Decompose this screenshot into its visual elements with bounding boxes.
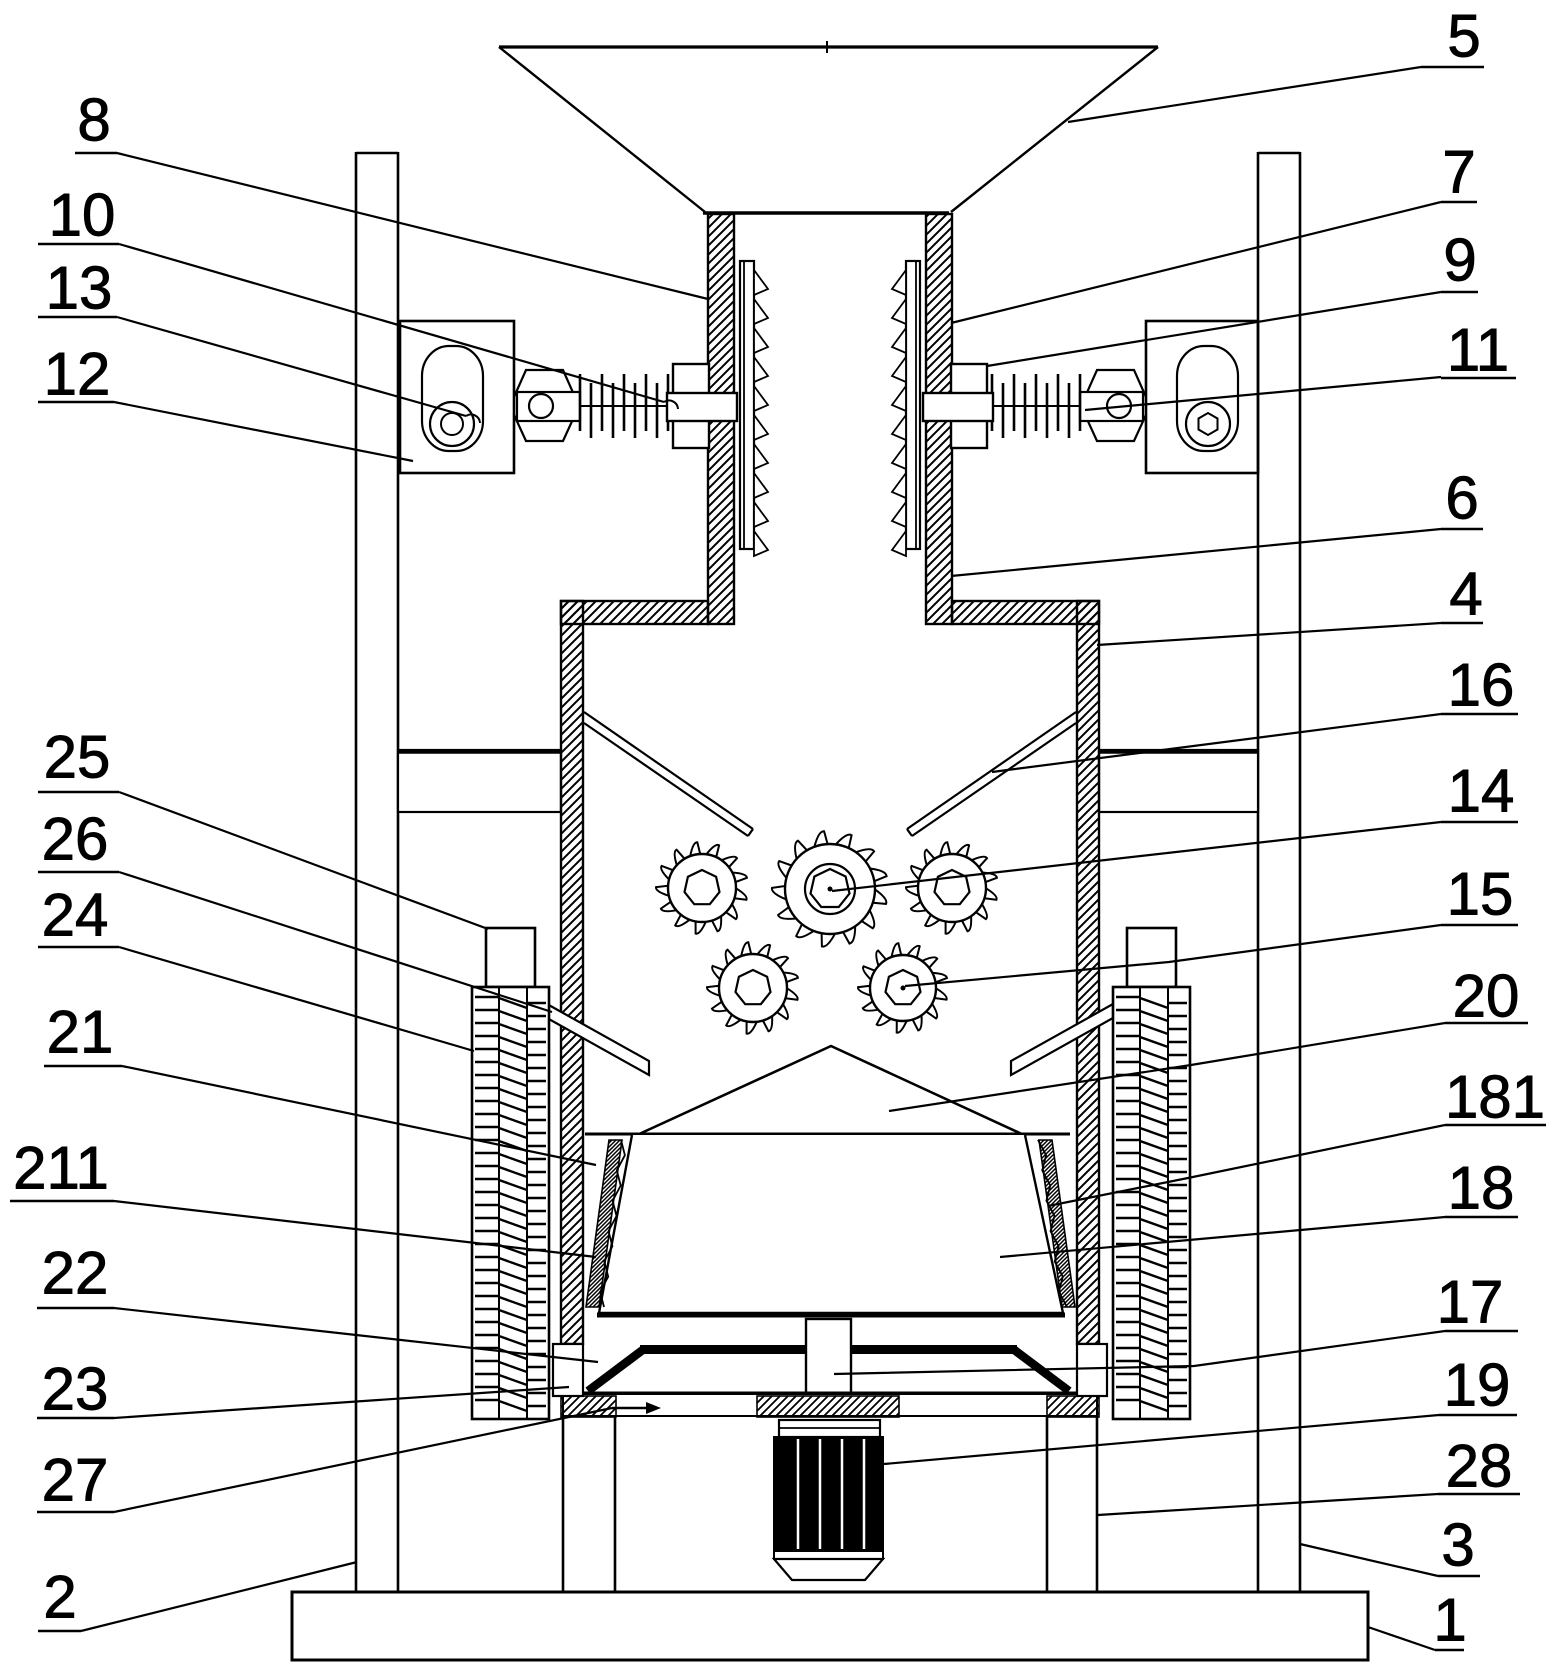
svg-text:9: 9 xyxy=(1443,227,1476,294)
svg-text:5: 5 xyxy=(1447,3,1480,70)
svg-text:1: 1 xyxy=(1433,1587,1466,1654)
svg-text:17: 17 xyxy=(1437,1269,1504,1336)
svg-text:8: 8 xyxy=(77,87,110,154)
svg-text:7: 7 xyxy=(1442,139,1475,206)
svg-text:13: 13 xyxy=(46,255,113,322)
svg-text:4: 4 xyxy=(1449,561,1482,628)
svg-text:15: 15 xyxy=(1447,861,1514,928)
svg-text:3: 3 xyxy=(1441,1512,1474,1579)
svg-text:28: 28 xyxy=(1446,1433,1513,1500)
svg-text:16: 16 xyxy=(1448,652,1515,719)
svg-text:12: 12 xyxy=(44,341,111,408)
svg-text:18: 18 xyxy=(1448,1155,1515,1222)
svg-text:181: 181 xyxy=(1445,1064,1545,1131)
svg-text:10: 10 xyxy=(49,182,116,249)
svg-text:22: 22 xyxy=(42,1240,109,1307)
svg-text:26: 26 xyxy=(42,806,109,873)
svg-text:2: 2 xyxy=(43,1564,76,1631)
svg-text:25: 25 xyxy=(44,724,111,791)
svg-text:11: 11 xyxy=(1447,317,1509,384)
svg-text:211: 211 xyxy=(13,1135,109,1202)
svg-text:23: 23 xyxy=(42,1356,109,1423)
svg-text:14: 14 xyxy=(1448,758,1515,825)
svg-text:6: 6 xyxy=(1445,465,1478,532)
svg-text:24: 24 xyxy=(42,882,109,949)
svg-text:19: 19 xyxy=(1444,1352,1511,1419)
svg-text:20: 20 xyxy=(1453,963,1520,1030)
svg-text:27: 27 xyxy=(42,1447,109,1514)
svg-text:21: 21 xyxy=(47,999,114,1066)
